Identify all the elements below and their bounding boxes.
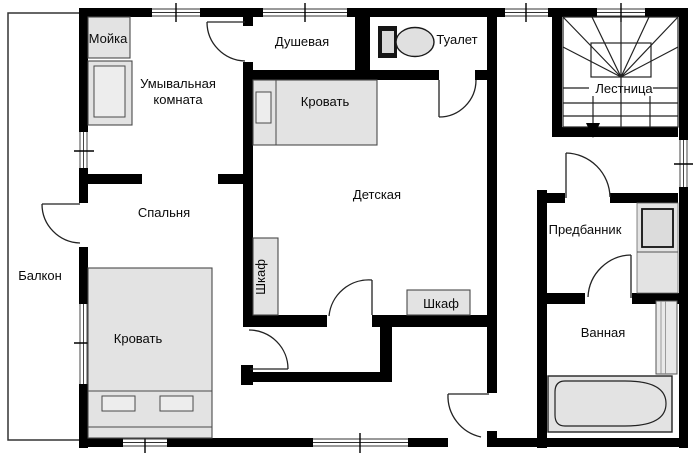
- nursery-wardrobe-side-label: Шкаф: [253, 259, 268, 295]
- bedroom-bed: [88, 268, 212, 438]
- wall-segment: [487, 8, 497, 393]
- bathroom-wall-unit: [656, 301, 677, 374]
- wall-segment: [408, 438, 448, 447]
- bathroom-label: Ванная: [581, 325, 626, 340]
- wall-segment: [79, 8, 88, 132]
- wall-segment: [487, 438, 688, 447]
- wall-segment: [79, 168, 88, 203]
- floor-plan-page: Мойка Умывальная комната Душевая Туалет …: [0, 0, 700, 456]
- wall-segment: [537, 293, 585, 304]
- bedroom-bed-label: Кровать: [114, 331, 163, 346]
- floor-plan: Мойка Умывальная комната Душевая Туалет …: [0, 0, 700, 456]
- nursery-bed-label: Кровать: [301, 94, 350, 109]
- wall-segment: [79, 438, 123, 447]
- wall-segment: [241, 372, 390, 382]
- wall-segment: [679, 187, 688, 448]
- wall-segment: [679, 8, 688, 140]
- shower-label: Душевая: [275, 34, 329, 49]
- toilet-label: Туалет: [436, 32, 477, 47]
- sink-label: Мойка: [89, 31, 128, 46]
- wall-segment: [243, 70, 439, 80]
- washroom-label-line1: Умывальная: [140, 76, 216, 91]
- wall-segment: [167, 438, 313, 447]
- washroom-fixture: [88, 61, 132, 125]
- nursery-wardrobe-bottom-label: Шкаф: [423, 296, 459, 311]
- wall-segment: [552, 8, 562, 137]
- nursery-bed: [253, 80, 377, 145]
- wall-segment: [487, 431, 497, 439]
- anteroom-stove: [637, 203, 678, 293]
- bathtub: [548, 376, 672, 432]
- wall-segment: [537, 190, 547, 448]
- anteroom-label: Предбанник: [549, 222, 622, 237]
- nursery-label: Детская: [353, 187, 401, 202]
- balcony-label: Балкон: [18, 268, 62, 283]
- wall-segment: [200, 8, 263, 17]
- toilet-fixture: [378, 26, 434, 58]
- wall-segment: [610, 193, 678, 203]
- bedroom-label: Спальня: [138, 205, 190, 220]
- wall-segment: [80, 8, 152, 17]
- wall-segment: [552, 127, 678, 137]
- wall-segment: [243, 315, 327, 327]
- wall-segment: [537, 193, 565, 203]
- wall-segment: [243, 62, 253, 325]
- wall-segment: [218, 174, 253, 184]
- wall-segment: [380, 323, 392, 382]
- wall-segment: [84, 174, 142, 184]
- wall-segment: [243, 14, 253, 26]
- wall-segment: [79, 247, 88, 304]
- wall-segment: [347, 8, 505, 17]
- stairs-label: Лестница: [595, 81, 653, 96]
- wall-segment: [355, 17, 370, 70]
- washroom-label-line2: комната: [153, 92, 203, 107]
